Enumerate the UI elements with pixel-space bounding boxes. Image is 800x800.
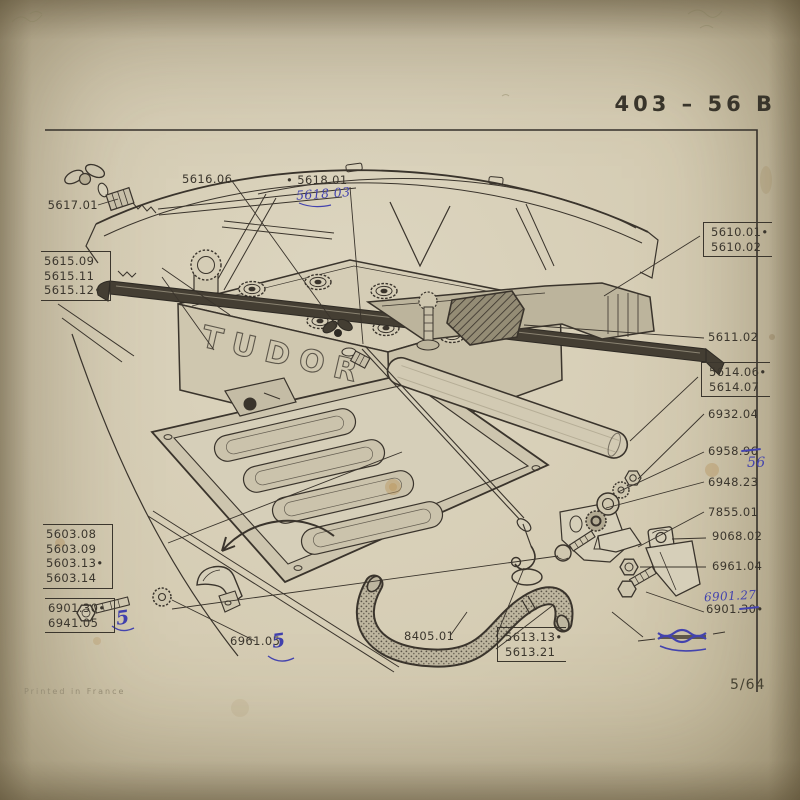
label-5611-02: 5611.02 [708,330,758,345]
label-5603-09: 5603.09 [46,542,104,557]
label-5610-01: 5610.01• [711,225,769,240]
label-6958-prefix: 6958. [708,444,743,458]
label-group-5614: 5614.06• 5614.07 [701,362,770,397]
label-5614-07: 5614.07 [709,380,767,395]
label-7855-01: 7855.01 [708,505,758,520]
printed-in-france: Printed in France [24,687,125,696]
label-group-5610: 5610.01• 5610.02 [703,222,772,257]
label-6901-30-right: 6901.30• [706,602,764,617]
label-6961-04: 6961.04 [712,559,762,574]
label-6901-prefix: 6901. [706,602,741,616]
label-6948-23: 6948.23 [708,475,758,490]
label-5617-01: 5617.01 [40,198,98,213]
label-5613-21: 5613.21 [505,645,563,660]
label-5603-14: 5603.14 [46,571,104,586]
label-5614-06: 5614.06• [709,365,767,380]
page-number: 5/64 [730,677,765,693]
label-6901-struck: 30 [741,602,756,617]
corner-scribbles [12,10,722,96]
catalog-page: TUDOR [0,0,800,800]
label-8405-01: 8405.01 [404,629,454,644]
label-5615-09: 5615.09 [44,254,102,269]
label-5610-02: 5610.02 [711,240,769,255]
label-6941-05: 6941.05 [48,616,106,631]
label-5603-13: 5603.13• [46,556,104,571]
label-group-5615: 5615.09 5615.11 5615.12• [41,251,111,301]
label-5615-12: 5615.12• [44,283,102,298]
label-group-5603: 5603.08 5603.09 5603.13• 5603.14 [43,524,113,589]
label-9068-02: 9068.02 [712,529,762,544]
handwritten-5-over-6961: 5 [271,629,287,653]
plate-number: 403 – 56 B [615,92,777,116]
label-5616-06: 5616.06 [182,172,232,187]
exploded-diagram: TUDOR [0,0,800,800]
battery-terminal [191,250,221,293]
fixings-drawing [555,471,700,597]
handwritten-56: 56 [747,455,766,473]
label-group-5613: 5613.13• 5613.21 [497,627,566,662]
label-5603-08: 5603.08 [46,527,104,542]
label-6901-bullet: • [756,602,763,616]
label-5613-13: 5613.13• [505,630,563,645]
label-6932-04: 6932.04 [708,407,758,422]
label-6901-30-left: 6901.30• [48,601,106,616]
label-group-6901-6941: 6901.30• 6941.05 [45,598,115,633]
handwritten-5-over-6941: 5 [115,606,131,630]
scribbled-out-label [658,630,706,651]
label-5615-11: 5615.11 [44,269,102,284]
